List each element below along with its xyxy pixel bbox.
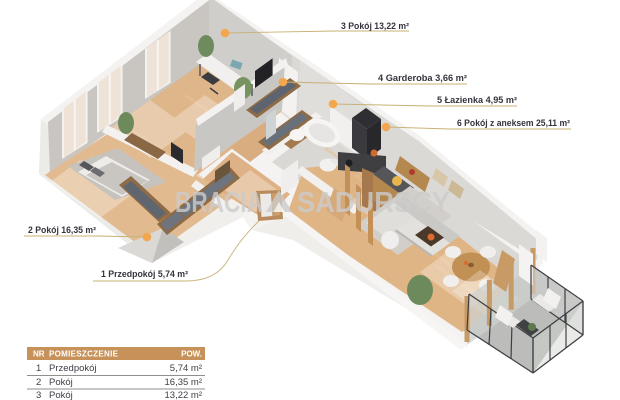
svg-text:5,74 m²: 5,74 m² <box>170 363 202 374</box>
svg-text:5 Łazienka 4,95 m²: 5 Łazienka 4,95 m² <box>437 95 517 105</box>
svg-text:2: 2 <box>36 377 41 388</box>
svg-text:13,22 m²: 13,22 m² <box>165 390 203 400</box>
svg-text:2 Pokój 16,35 m²: 2 Pokój 16,35 m² <box>28 225 96 235</box>
svg-text:BRACIA: BRACIA <box>175 187 263 219</box>
svg-text:SADURSCY: SADURSCY <box>297 187 450 219</box>
svg-text:16,35 m²: 16,35 m² <box>165 377 203 388</box>
svg-text:3 Pokój 13,22 m²: 3 Pokój 13,22 m² <box>341 21 409 31</box>
svg-text:6 Pokój z aneksem 25,11 m²: 6 Pokój z aneksem 25,11 m² <box>457 118 570 128</box>
svg-text:NR: NR <box>33 350 45 359</box>
svg-text:3: 3 <box>36 390 41 400</box>
svg-text:1 Przedpokój 5,74 m²: 1 Przedpokój 5,74 m² <box>101 269 188 279</box>
svg-text:Pokój: Pokój <box>49 390 73 400</box>
svg-text:Pokój: Pokój <box>49 377 73 388</box>
svg-text:Przedpokój: Przedpokój <box>49 363 97 374</box>
svg-text:4 Garderoba 3,66 m²: 4 Garderoba 3,66 m² <box>378 73 467 83</box>
svg-text:POW.: POW. <box>181 350 202 359</box>
svg-text:1: 1 <box>36 363 41 374</box>
svg-text:POMIESZCZENIE: POMIESZCZENIE <box>49 350 119 359</box>
